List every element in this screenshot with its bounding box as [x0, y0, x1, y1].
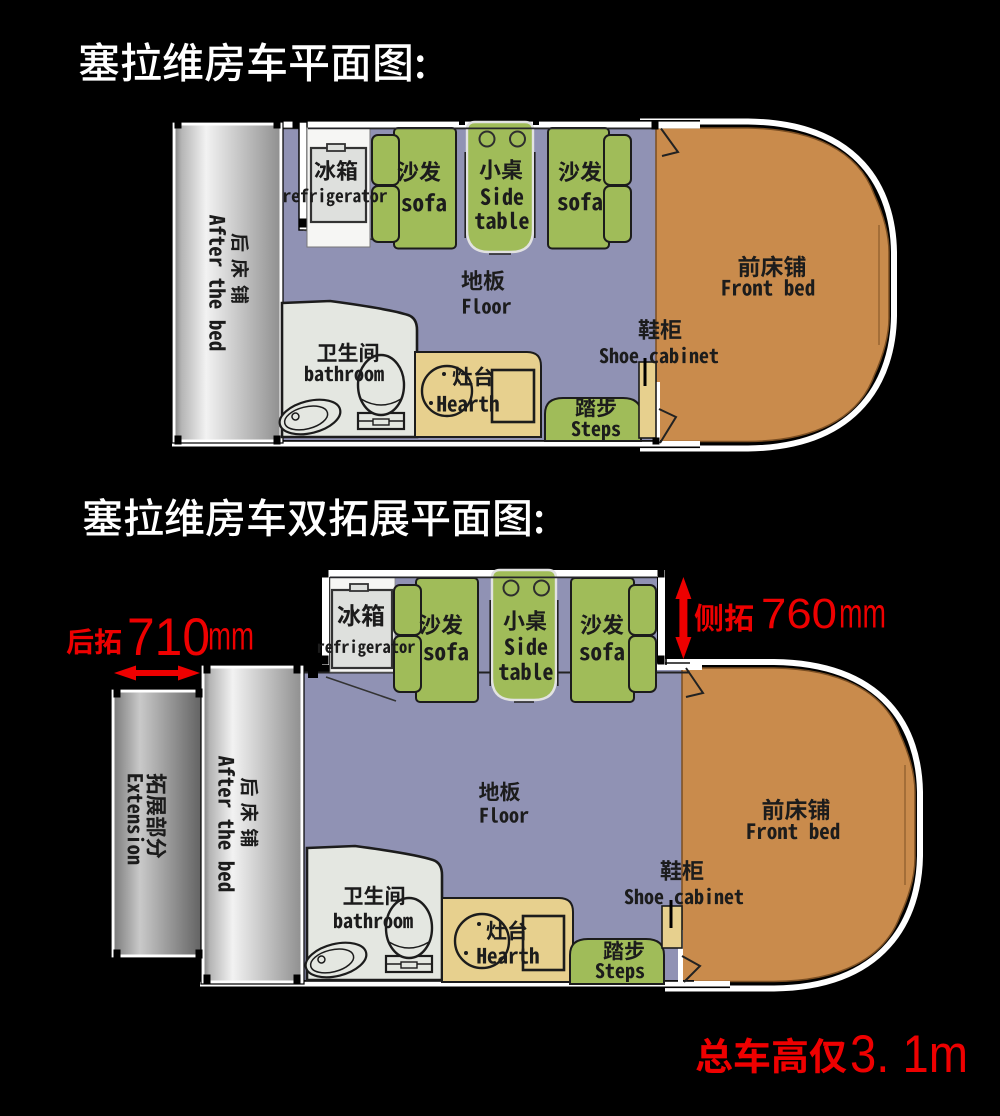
svg-text:mm: mm: [839, 590, 886, 637]
svg-text:mm: mm: [208, 615, 254, 659]
svg-text:760: 760: [761, 590, 837, 638]
svg-text:710: 710: [127, 608, 210, 667]
svg-text:3. 1m: 3. 1m: [850, 1025, 968, 1084]
